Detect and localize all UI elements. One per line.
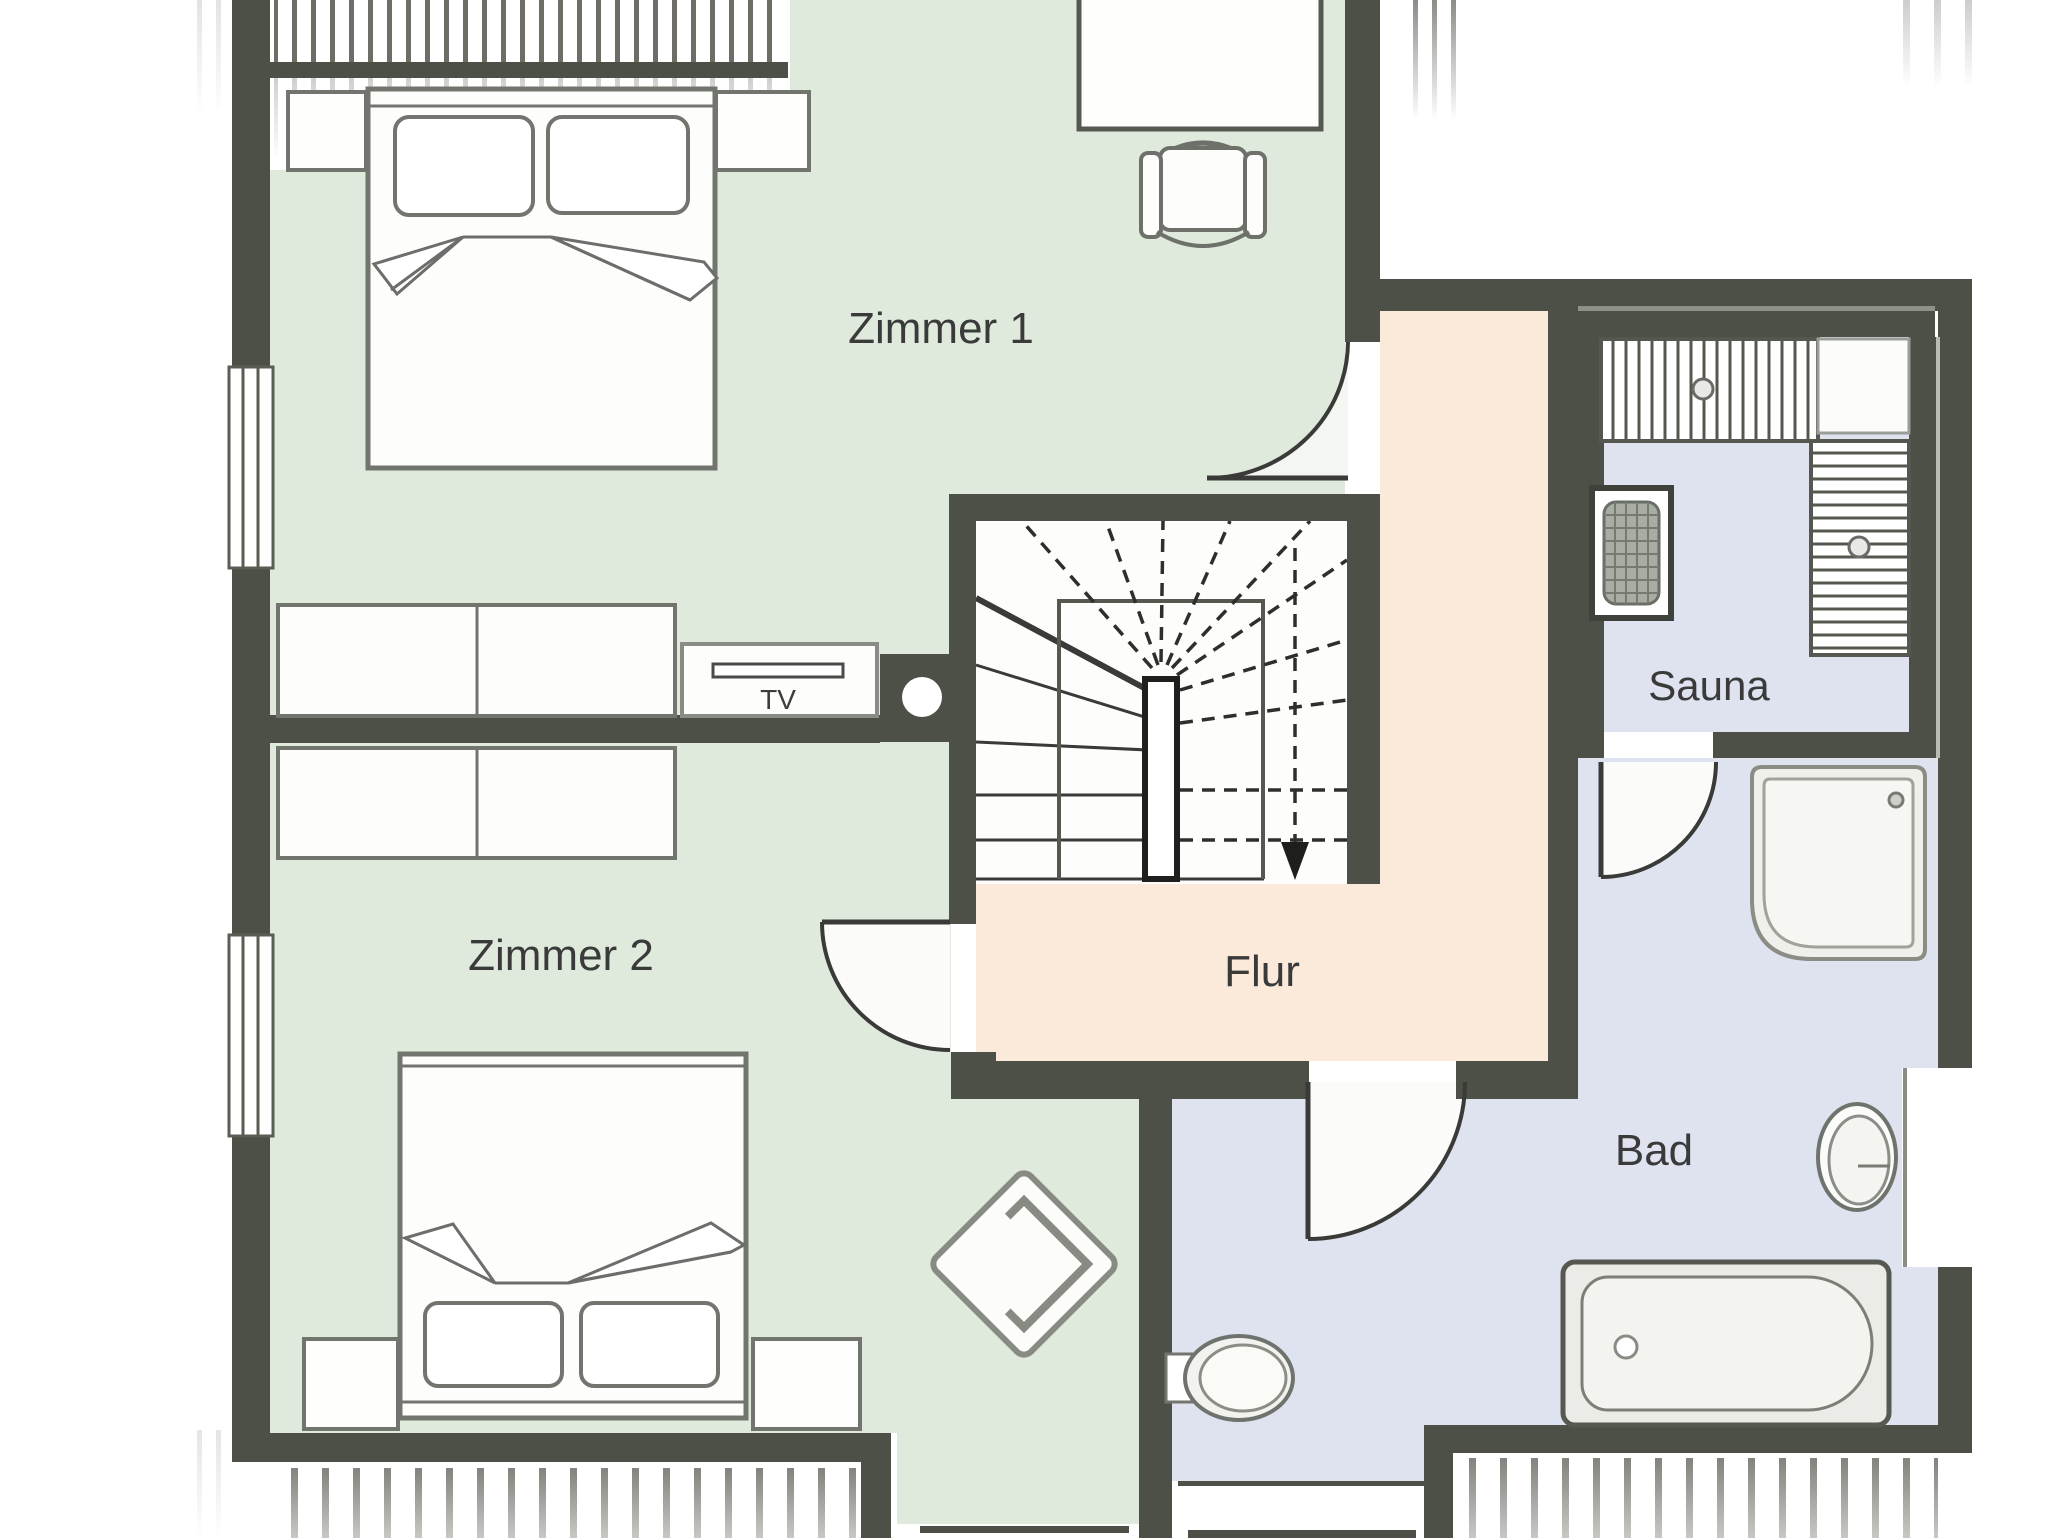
svg-text:Zimmer 1: Zimmer 1 <box>848 304 1034 353</box>
svg-text:Flur: Flur <box>1224 947 1300 996</box>
svg-text:Sauna: Sauna <box>1648 662 1770 709</box>
svg-text:Zimmer 2: Zimmer 2 <box>468 931 654 980</box>
svg-text:Bad: Bad <box>1615 1126 1693 1175</box>
svg-text:TV: TV <box>760 684 796 715</box>
